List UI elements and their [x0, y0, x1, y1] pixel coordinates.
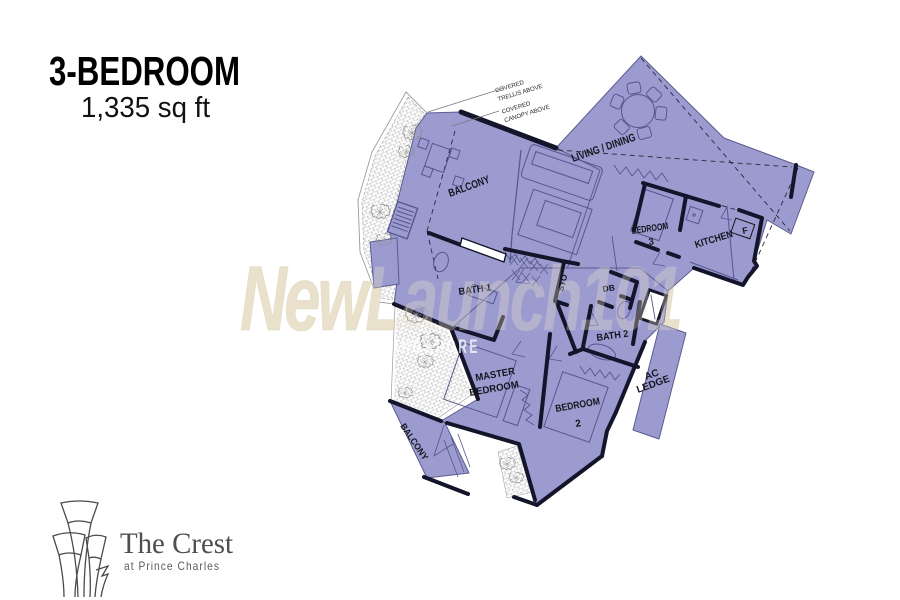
svg-text:SINGAPORE: SINGAPORE	[385, 337, 480, 358]
svg-text:at Prince Charles: at Prince Charles	[124, 559, 220, 573]
svg-text:NewLaunch101: NewLaunch101	[240, 248, 680, 350]
svg-text:The Crest: The Crest	[120, 527, 234, 560]
svg-text:3-BEDROOM: 3-BEDROOM	[49, 48, 240, 94]
svg-text:1,335 sq ft: 1,335 sq ft	[81, 92, 210, 124]
